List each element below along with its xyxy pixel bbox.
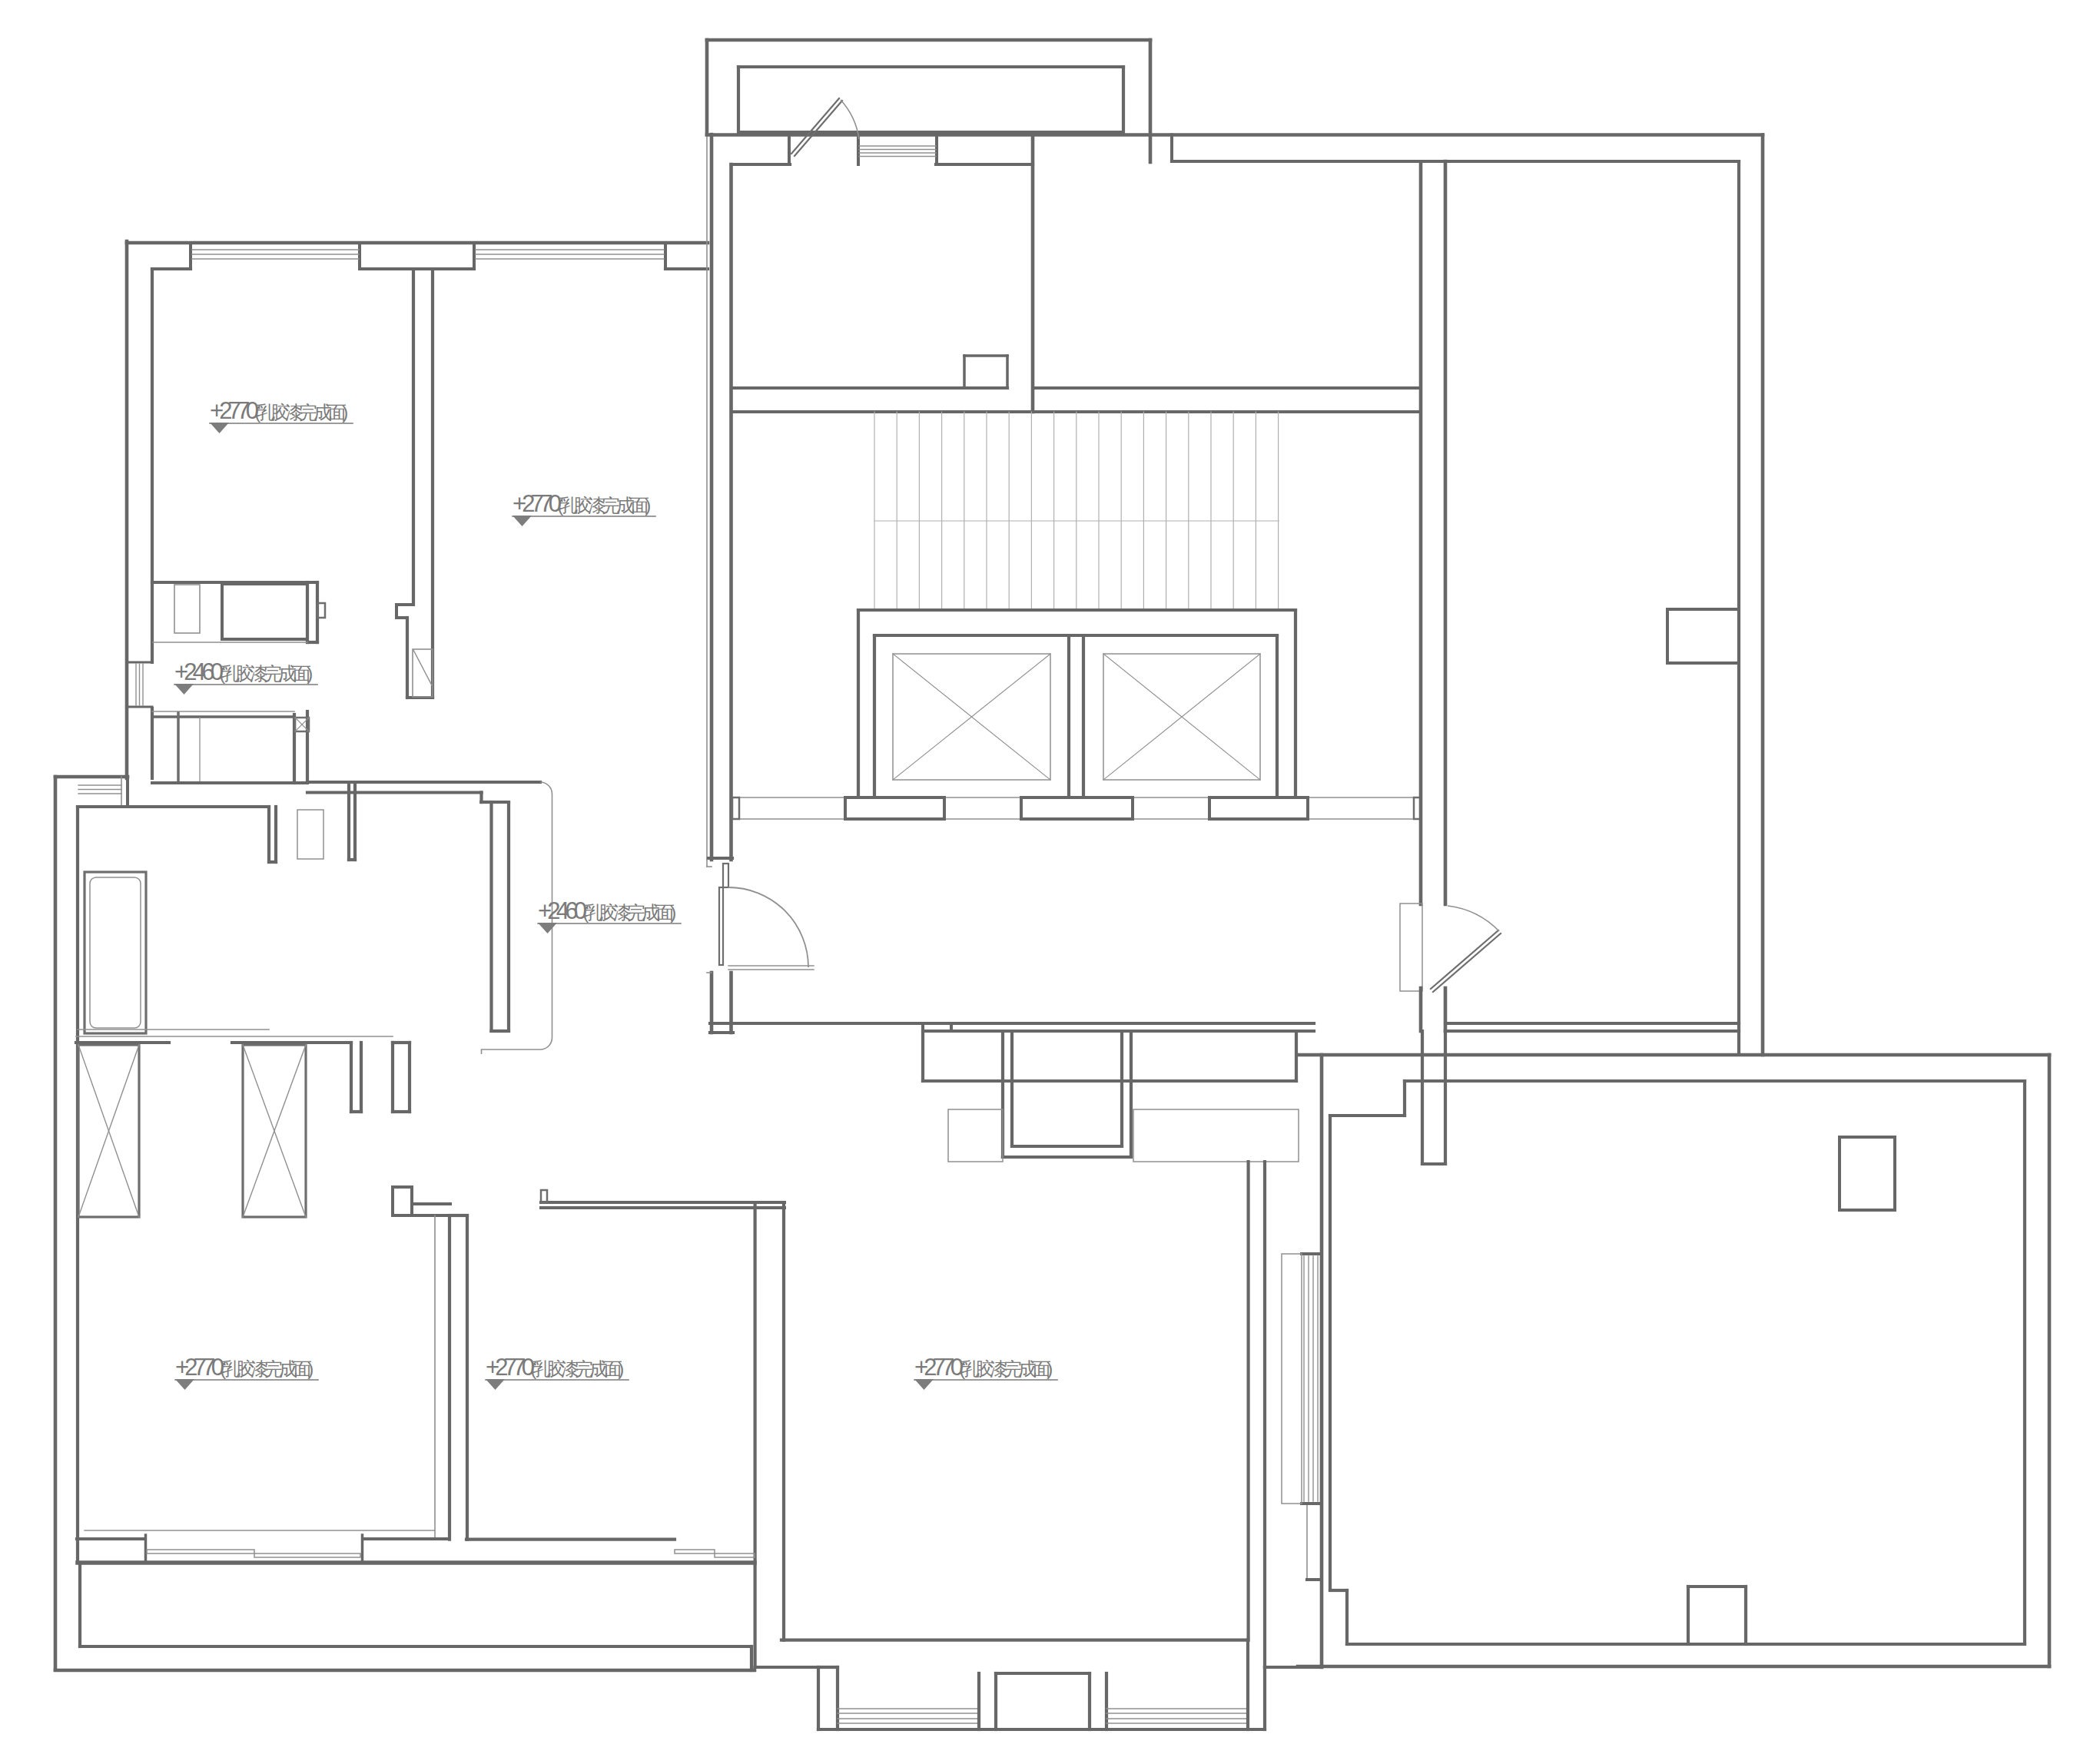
svg-text:+2770(乳胶漆完成面): +2770(乳胶漆完成面) — [914, 1354, 1053, 1381]
svg-text:+2770(乳胶漆完成面): +2770(乳胶漆完成面) — [486, 1354, 624, 1381]
svg-text:+2460(乳胶漆完成面): +2460(乳胶漆完成面) — [174, 658, 313, 685]
svg-text:+2770(乳胶漆完成面): +2770(乳胶漆完成面) — [175, 1354, 314, 1381]
svg-text:+2770(乳胶漆完成面): +2770(乳胶漆完成面) — [513, 490, 651, 517]
svg-text:+2460(乳胶漆完成面): +2460(乳胶漆完成面) — [538, 897, 676, 924]
svg-text:+2770(乳胶漆完成面): +2770(乳胶漆完成面) — [210, 397, 348, 424]
